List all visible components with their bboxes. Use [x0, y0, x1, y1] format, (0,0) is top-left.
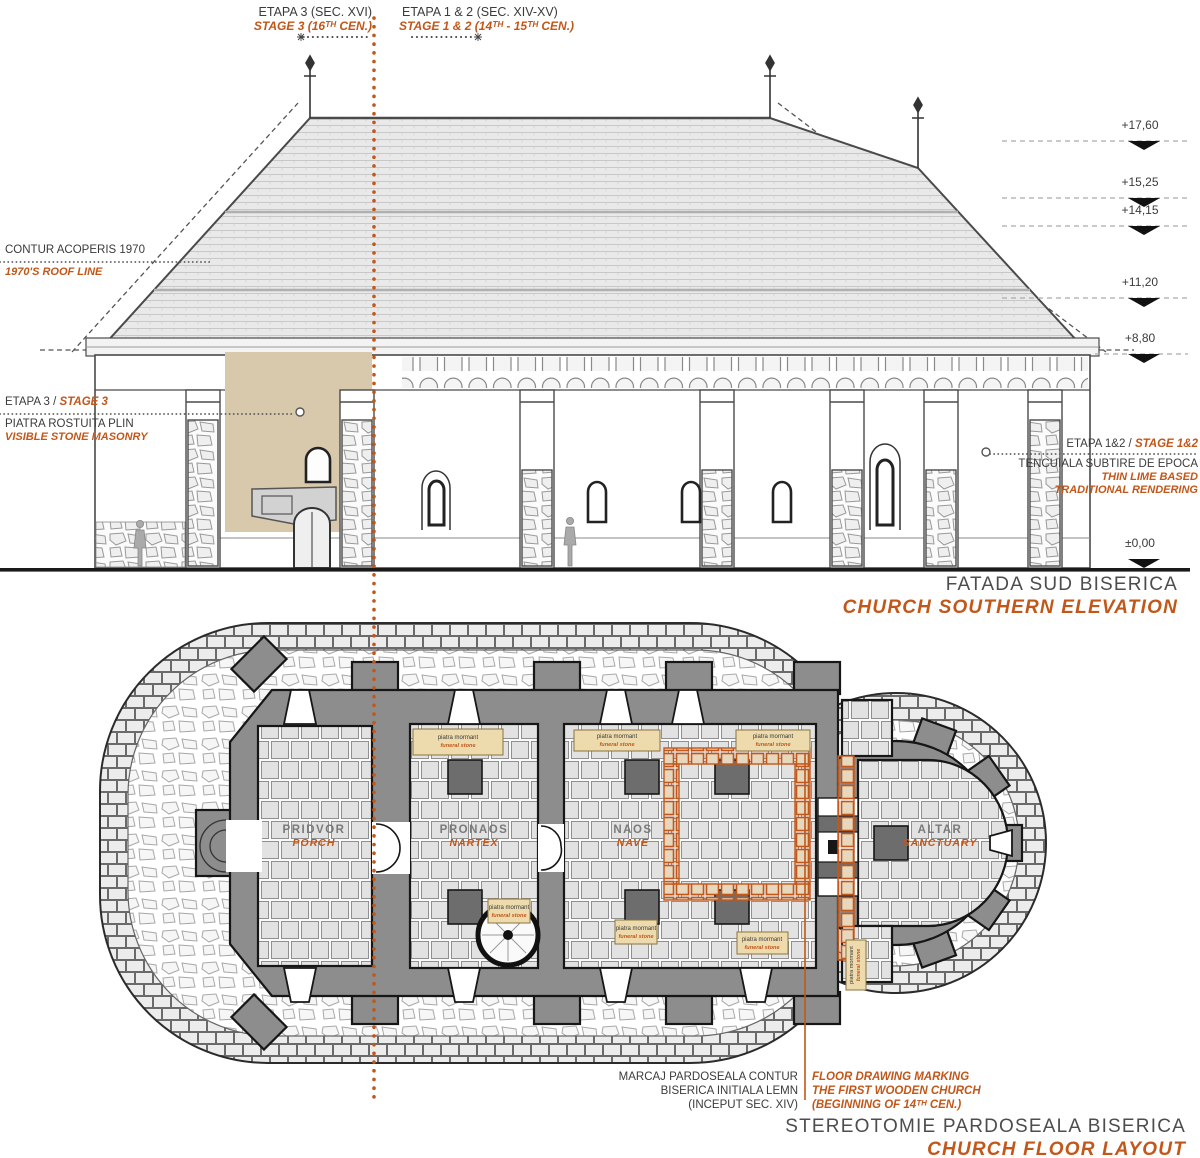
funeral-stone-label: piatra mormant	[489, 905, 530, 911]
stage3-note-title: ETAPA 3 / STAGE 3	[5, 396, 108, 409]
portal-niche	[306, 448, 330, 482]
room-label-altar-en: SANCTUARY	[880, 838, 1000, 850]
funeral-stone-label: piatra mormant	[742, 937, 783, 943]
plan-title-ro: STEREOTOMIE PARDOSEALA BISERICA	[686, 1117, 1186, 1138]
elevation-title-en: CHURCH SOUTHERN ELEVATION	[778, 598, 1178, 619]
room-label-porch-en: PORCH	[254, 838, 374, 850]
marking-note-ro-2: BISERICA INITIALA LEMN	[550, 1085, 798, 1098]
funeral-stone-label: funeral stone	[599, 742, 634, 748]
funeral-stone-label: piatra mormant	[849, 946, 855, 984]
room-label-pronaos-en: NARTEX	[414, 838, 534, 850]
stage3-note-title-ro: ETAPA 3 /	[5, 396, 60, 408]
marking-note-ro-1: MARCAJ PARDOSEALA CONTUR	[550, 1071, 798, 1084]
room-label-pronaos-ro: PRONAOS	[414, 824, 534, 837]
marking-note-en-3: (BEGINNING OF 14ᵀᴴ CEN.)	[812, 1099, 961, 1112]
marking-note-en-1: FLOOR DRAWING MARKING	[812, 1071, 969, 1084]
dimension-tick	[474, 33, 482, 41]
ground-line	[0, 568, 1190, 572]
marking-note-en-2: THE FIRST WOODEN CHURCH	[812, 1085, 981, 1098]
blind-arcade-band	[402, 357, 1088, 388]
stage12-note-title: ETAPA 1&2 / STAGE 1&2	[958, 438, 1198, 451]
north-chamber	[842, 700, 892, 756]
level-label-0-00: ±0,00	[1108, 537, 1172, 550]
wooden-church-marking-strip	[838, 756, 854, 960]
roof-contour-label-en: 1970'S ROOF LINE	[5, 266, 102, 278]
stage3-note-title-en: STAGE 3	[60, 396, 108, 408]
nave-window	[588, 482, 606, 522]
architectural-drawing-sheet: piatra mormant funeral stone piatra morm…	[0, 0, 1200, 1158]
level-label-17-60: +17,60	[1108, 119, 1172, 132]
stage12-note-ro: TENCUIALA SUBTIRE DE EPOCA	[958, 458, 1198, 471]
funeral-stone-label: funeral stone	[618, 934, 653, 940]
roof	[86, 118, 1099, 356]
funeral-stone-label: piatra mormant	[438, 735, 479, 741]
stage3-period-label-ro: ETAPA 3 (SEC. XVI)	[110, 6, 372, 20]
nave-window	[682, 482, 700, 522]
stage12-note-title-ro: ETAPA 1&2 /	[1066, 438, 1135, 450]
elevation-title-ro: FATADA SUD BISERICA	[778, 575, 1178, 596]
funeral-stone-label: piatra mormant	[616, 926, 657, 932]
nave-window	[773, 482, 791, 522]
stage3-period-label-en: STAGE 3 (16ᵀᴴ CEN.)	[110, 20, 372, 33]
stage12-period-label-en: STAGE 1 & 2 (14ᵀᴴ - 15ᵀᴴ CEN.)	[399, 20, 574, 33]
room-label-porch-ro: PRIDVOR	[254, 824, 374, 837]
funeral-stone-label: piatra mormant	[753, 734, 794, 740]
royal-door	[828, 840, 838, 854]
funeral-stone-label: funeral stone	[744, 945, 779, 951]
funeral-stone-label: piatra mormant	[597, 734, 638, 740]
pronaos-naos-door	[538, 824, 564, 872]
funeral-stone-label: funeral stone	[491, 913, 526, 919]
funeral-stone-label: funeral stone	[755, 742, 790, 748]
level-label-14-15: +14,15	[1108, 204, 1172, 217]
level-label-8-80: +8,80	[1108, 332, 1172, 345]
room-label-altar-ro: ALTAR	[880, 824, 1000, 837]
stage12-note-en2: TRADITIONAL RENDERING	[958, 484, 1198, 496]
room-label-naos-ro: NAOS	[573, 824, 693, 837]
dimension-tick	[297, 33, 305, 41]
funeral-stone-label: funeral stone	[856, 949, 862, 982]
stage12-note-title-en: STAGE 1&2	[1135, 438, 1198, 450]
stage3-note-ro: PIATRA ROSTUITA PLIN	[5, 418, 134, 431]
roof-contour-label-ro: CONTUR ACOPERIS 1970	[5, 244, 145, 257]
funeral-stone-label: funeral stone	[440, 743, 475, 749]
stage12-note-en1: THIN LIME BASED	[958, 471, 1198, 483]
plan-title-en: CHURCH FLOOR LAYOUT	[686, 1140, 1186, 1158]
marking-note-ro-3: (INCEPUT SEC. XIV)	[550, 1099, 798, 1112]
room-label-naos-en: NAVE	[573, 838, 693, 850]
stage3-note-en: VISIBLE STONE MASONRY	[5, 431, 148, 443]
level-label-11-20: +11,20	[1108, 276, 1172, 289]
level-label-15-25: +15,25	[1108, 176, 1172, 189]
stage12-period-label-ro: ETAPA 1 & 2 (SEC. XIV-XV)	[402, 6, 558, 20]
